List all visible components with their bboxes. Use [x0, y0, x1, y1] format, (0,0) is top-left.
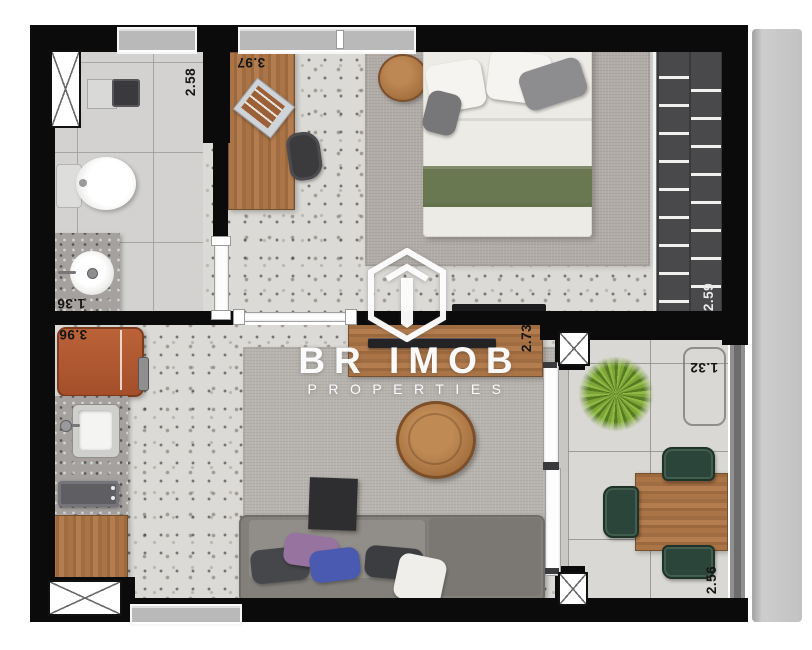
wardrobe-left-column: [659, 51, 689, 315]
balcony-table: [635, 473, 728, 551]
wall-divider-left: [30, 311, 237, 325]
balcony-door-stop-top: [543, 362, 557, 368]
dim-living-room: 2.73: [518, 316, 536, 360]
exterior-side-band: [752, 29, 802, 622]
dim-home-office: 3.97: [229, 53, 273, 71]
sofa-chaise: [429, 518, 541, 596]
dim-kitchen: 3.96: [51, 325, 95, 343]
bath-faucet-knob: [87, 268, 98, 279]
tv-console: [348, 322, 543, 377]
balcony-door-panel-1: [543, 362, 559, 470]
sofa-pillow-blue: [308, 546, 362, 584]
balcony-railing: [728, 337, 748, 598]
washing-machine: [112, 79, 140, 107]
refrigerator-handle: [138, 357, 149, 391]
balcony-door-panel-2: [545, 468, 561, 576]
cooktop-knob-2: [111, 496, 115, 500]
sofa-side-table: [308, 477, 358, 531]
kitchen-faucet-knob: [60, 420, 72, 432]
floor-plan: 2.58 3.97 1.36 3.96 2.73 2.59 1.32 2.56 …: [0, 0, 812, 650]
wall-bathroom-upper: [203, 25, 230, 143]
dim-bathroom: 1.36: [49, 294, 93, 312]
toilet-hinge: [79, 179, 87, 187]
bathroom-door-cap-bottom: [211, 310, 231, 320]
hall-sliding-door: [237, 312, 351, 322]
balcony-chair-top: [662, 447, 715, 481]
wall-bathroom-lower: [213, 143, 228, 240]
kitchen-sink-basin: [78, 410, 112, 450]
shaft-bathroom: [50, 50, 81, 128]
bedside-poof: [378, 54, 428, 102]
cooktop-knob-1: [111, 486, 115, 490]
window-living-bottom: [130, 604, 242, 626]
bed-blanket: [423, 166, 592, 207]
dim-laundry: 2.58: [182, 60, 200, 104]
cooktop: [58, 481, 119, 507]
dim-closet: 2.59: [700, 275, 718, 319]
refrigerator-door-split: [120, 330, 122, 390]
balcony-door-stop-mid: [543, 462, 559, 470]
plant: [578, 356, 654, 432]
shaft-balcony-top: [558, 331, 590, 366]
coffee-table-ring: [408, 413, 462, 465]
tv: [368, 338, 496, 348]
bath-faucet: [58, 271, 76, 274]
dim-balcony-length: 2.56: [703, 558, 721, 602]
window-office-bedroom: [238, 27, 416, 54]
shaft-kitchen: [48, 580, 122, 616]
kitchen-wood-cabinet: [50, 515, 128, 579]
balcony-door-stop-bottom: [545, 568, 559, 574]
shaft-balcony-bottom: [558, 572, 588, 606]
bathroom-sliding-door: [214, 240, 229, 316]
dim-balcony-width: 1.32: [682, 358, 726, 376]
balcony-chair-left: [603, 486, 639, 538]
wall-right: [722, 25, 748, 345]
hall-door-cap-right: [345, 309, 357, 325]
bathroom-door-cap-top: [211, 236, 231, 246]
window-mullion: [336, 30, 344, 49]
hall-door-cap-left: [233, 309, 245, 325]
window-laundry: [117, 27, 197, 54]
